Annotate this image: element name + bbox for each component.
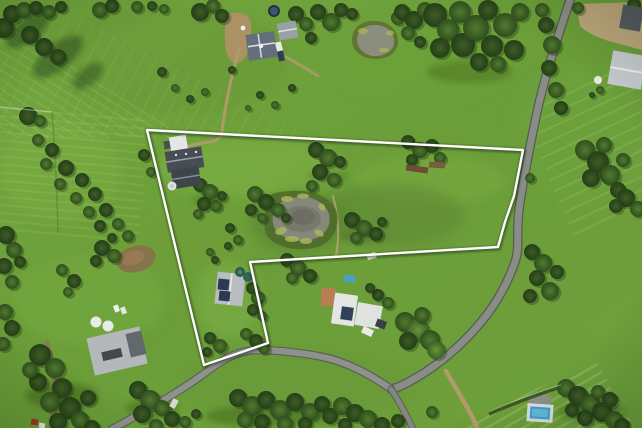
- aerial-photo-canvas: [0, 0, 642, 428]
- aerial-photo: [0, 0, 642, 428]
- vignette: [0, 0, 642, 428]
